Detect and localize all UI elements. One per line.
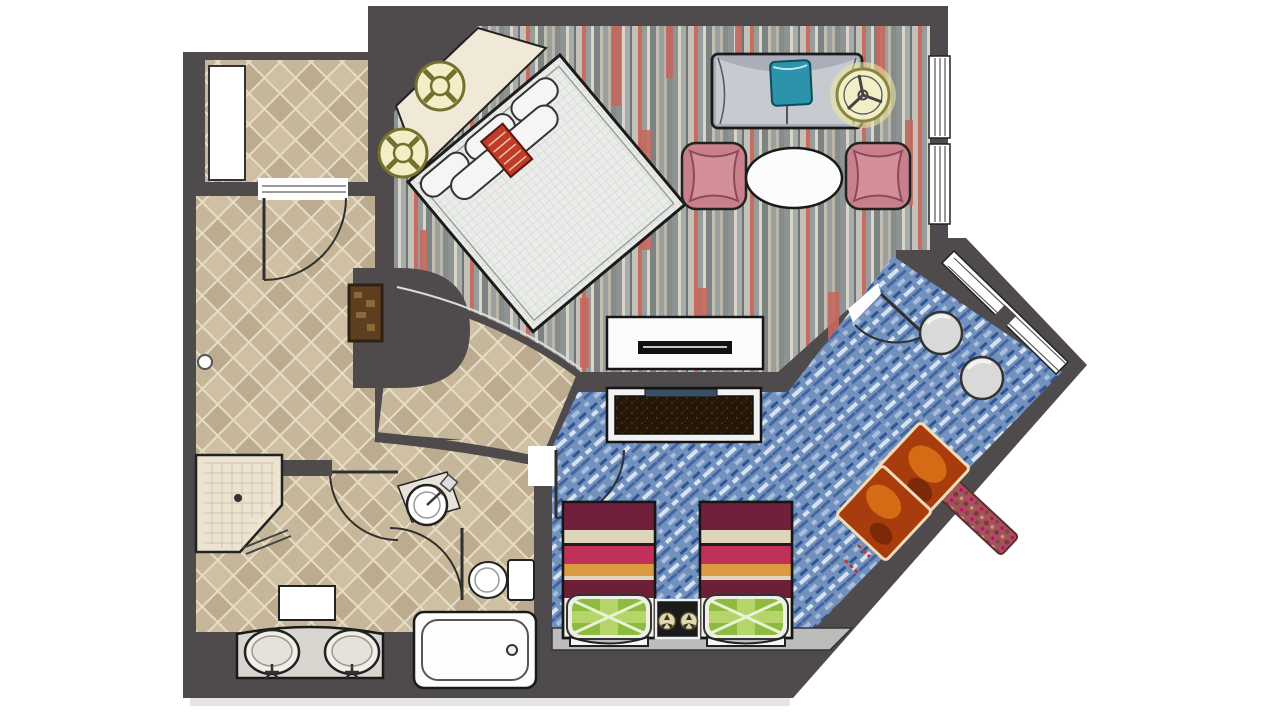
tv-console-living — [607, 317, 763, 369]
twin-bed-left — [563, 502, 655, 646]
pink-armchair-left — [682, 143, 746, 209]
closet — [209, 66, 245, 180]
teal-cushion — [770, 60, 812, 106]
bedside-lamp-symbol-left — [659, 613, 676, 630]
ceiling-fan-symbol — [830, 62, 896, 128]
pouf-lower — [961, 357, 1003, 399]
floor-plan-svg: Hotel suite floor plan — [0, 0, 1280, 720]
bathtub — [414, 612, 536, 688]
bedside-lamp-symbol-right — [681, 613, 698, 630]
twin-bed-right — [700, 502, 792, 646]
light-fixture-symbol-upper — [416, 62, 464, 110]
toilet — [469, 560, 534, 600]
nightstand — [656, 600, 699, 638]
wall-hook — [198, 355, 212, 369]
bath-mat — [279, 586, 335, 620]
oval-coffee-table — [746, 148, 842, 208]
pouf-upper — [920, 312, 962, 354]
tv-console-bedroom — [607, 388, 761, 442]
floor-plan-image: Hotel suite floor plan — [0, 0, 1280, 720]
double-vanity — [237, 627, 383, 678]
pink-armchair-right — [846, 143, 910, 209]
light-fixture-symbol-lower — [379, 129, 427, 177]
plan-shadow — [190, 698, 790, 706]
bathroom-wall-stub — [278, 460, 332, 476]
